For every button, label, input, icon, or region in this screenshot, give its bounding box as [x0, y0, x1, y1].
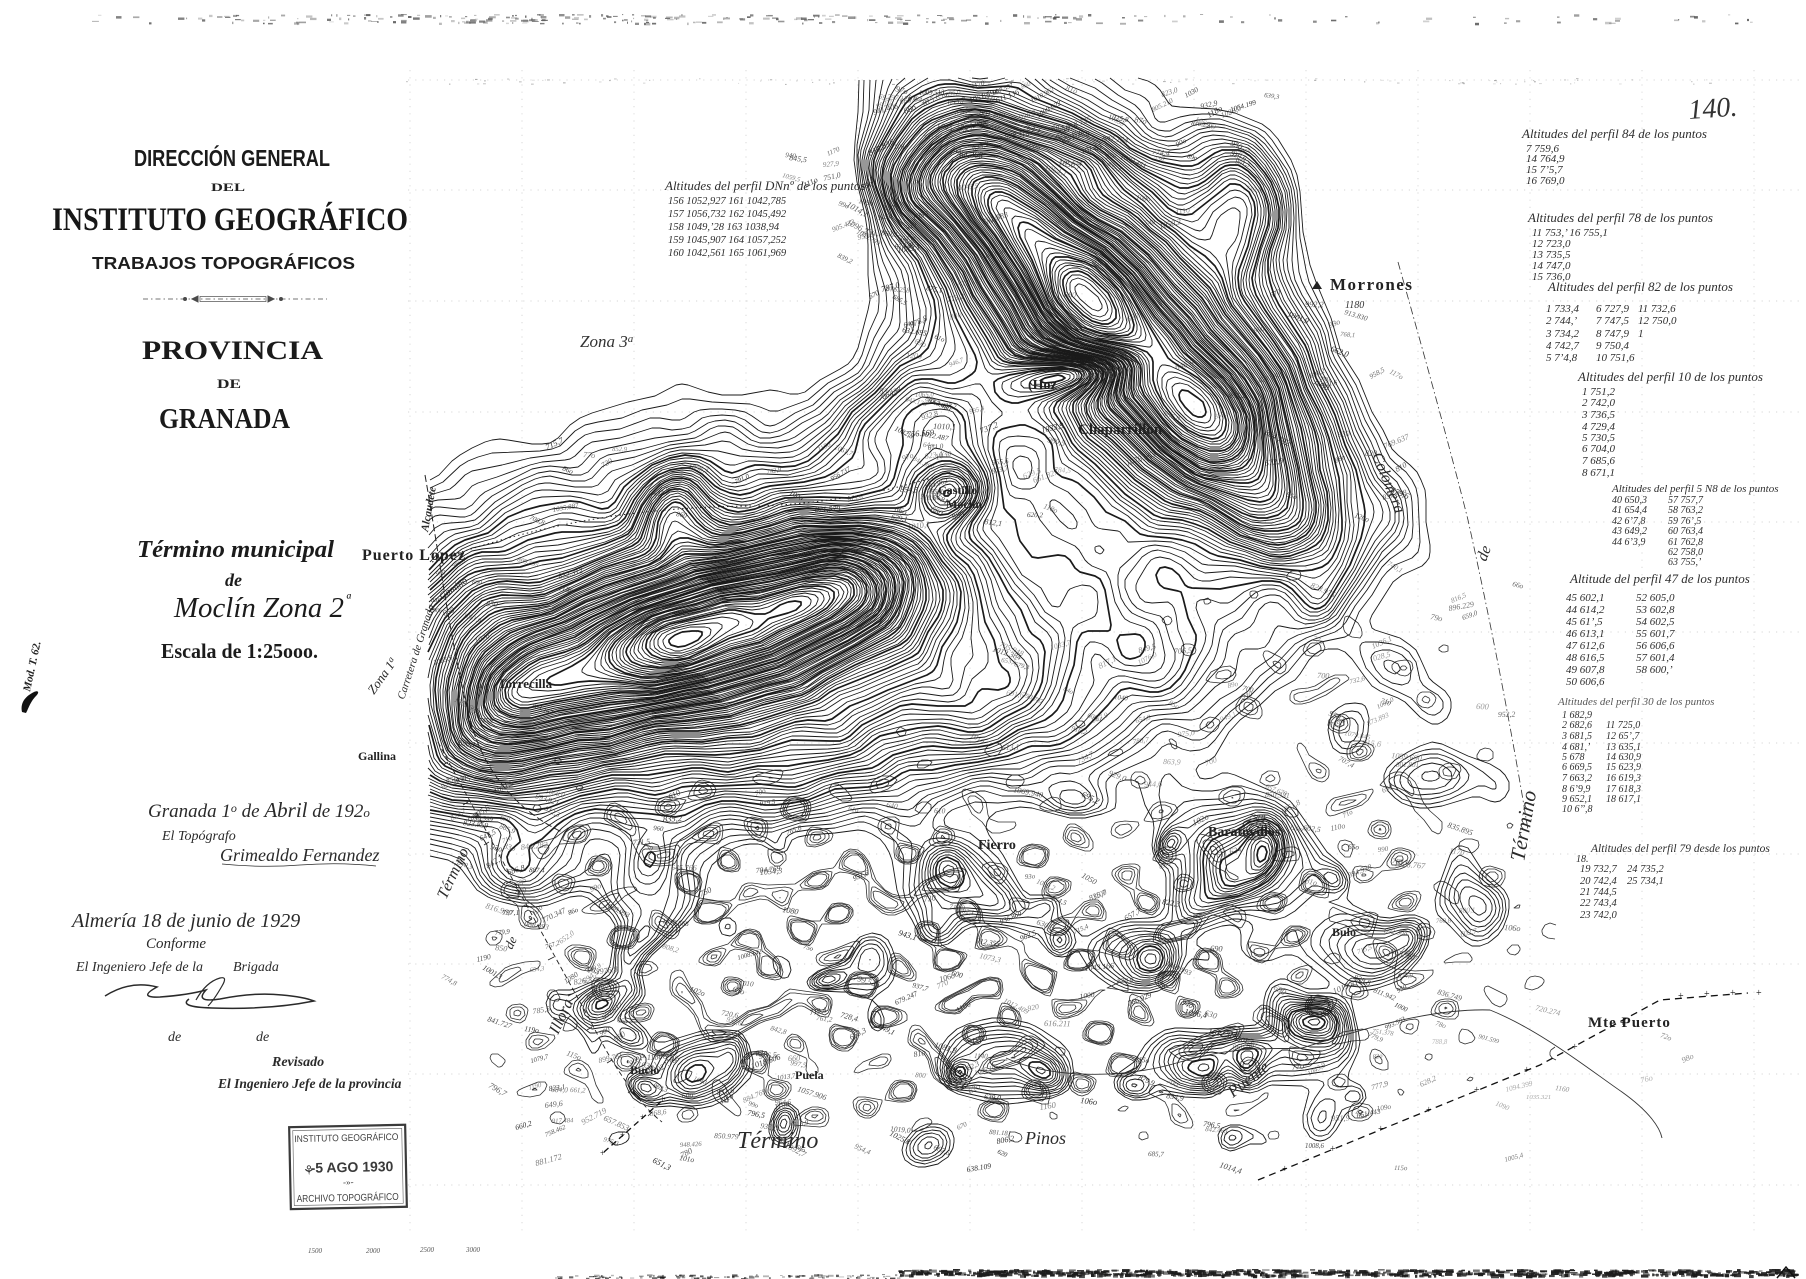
svg-text:835,2: 835,2	[663, 813, 683, 824]
svg-text:1010,1: 1010,1	[933, 422, 956, 431]
svg-text:944,6: 944,6	[1144, 779, 1163, 789]
svg-text:899.761: 899.761	[597, 1051, 623, 1065]
svg-text:821.579: 821.579	[815, 504, 841, 514]
svg-text:55 601,7: 55 601,7	[1636, 628, 1675, 640]
svg-text:610: 610	[934, 806, 946, 815]
svg-text:1050: 1050	[877, 212, 893, 222]
svg-text:1014,4: 1014,4	[1218, 1160, 1242, 1176]
svg-text:75o: 75o	[802, 943, 814, 953]
svg-text:876.258: 876.258	[886, 284, 911, 295]
svg-text:861,2: 861,2	[1228, 391, 1246, 400]
svg-text:850.979: 850.979	[714, 1131, 739, 1141]
svg-text:86o: 86o	[561, 464, 574, 476]
svg-text:845,5: 845,5	[789, 153, 808, 164]
svg-text:842.463: 842.463	[1205, 1126, 1229, 1135]
svg-text:15 623,9: 15 623,9	[1606, 762, 1641, 773]
svg-text:790.787: 790.787	[1021, 691, 1044, 706]
svg-text:620,2: 620,2	[1027, 511, 1044, 519]
svg-text:94o: 94o	[953, 147, 966, 157]
svg-text:1170: 1170	[826, 146, 841, 158]
svg-text:768,1: 768,1	[1340, 331, 1356, 339]
svg-text:649,6: 649,6	[544, 1099, 563, 1110]
svg-text:+: +	[1756, 988, 1762, 999]
svg-text:81o: 81o	[913, 1048, 926, 1059]
svg-text:21 744,5: 21 744,5	[1580, 887, 1617, 898]
svg-text:159 1045,907 164 1057,252: 159 1045,907 164 1057,252	[668, 235, 787, 246]
svg-text:1035.321: 1035.321	[1526, 1094, 1551, 1101]
svg-text:Torrecilla: Torrecilla	[498, 676, 553, 691]
svg-text:Castillo: Castillo	[938, 483, 977, 497]
svg-text:48 616,5: 48 616,5	[1566, 652, 1605, 664]
svg-text:81o: 81o	[1064, 83, 1078, 95]
svg-text:1023,9: 1023,9	[432, 653, 453, 666]
svg-text:657.853: 657.853	[602, 1114, 630, 1133]
svg-text:975,0: 975,0	[1177, 728, 1195, 739]
svg-text:Zona 3a: Zona 3a	[580, 332, 634, 351]
svg-text:2000: 2000	[366, 1247, 381, 1255]
svg-text:Escala de 1:25ooo.: Escala de 1:25ooo.	[161, 639, 318, 663]
svg-text:948.426: 948.426	[680, 1141, 703, 1149]
svg-text:824,9: 824,9	[1398, 972, 1414, 980]
svg-text:730: 730	[923, 893, 937, 904]
svg-text:ª: ª	[346, 592, 352, 609]
svg-text:730: 730	[1021, 340, 1033, 349]
svg-text:1079,7: 1079,7	[530, 1053, 550, 1065]
svg-text:715,5: 715,5	[1356, 944, 1373, 956]
svg-text:811.942: 811.942	[1372, 986, 1397, 1003]
svg-text:+: +	[1378, 1124, 1384, 1135]
svg-text:796,5: 796,5	[747, 1108, 766, 1120]
svg-text:DE: DE	[217, 376, 241, 391]
svg-text:602,7: 602,7	[1459, 926, 1478, 939]
svg-text:740,9: 740,9	[1245, 183, 1263, 195]
svg-text:+: +	[1474, 1085, 1480, 1096]
svg-text:927,9: 927,9	[822, 160, 839, 169]
svg-text:690: 690	[1210, 944, 1224, 954]
svg-text:Conforme: Conforme	[146, 936, 206, 952]
svg-text:842,8: 842,8	[769, 1023, 788, 1036]
svg-text:+: +	[1704, 989, 1710, 1000]
svg-text:93o: 93o	[1327, 317, 1341, 330]
svg-text:639,3: 639,3	[1264, 92, 1281, 101]
svg-text:661,2: 661,2	[570, 1087, 586, 1095]
svg-text:57 601,4: 57 601,4	[1636, 652, 1675, 664]
svg-text:10 6’’,8: 10 6’’,8	[1562, 804, 1593, 815]
svg-text:875,1: 875,1	[926, 284, 943, 295]
svg-text:49 607,8: 49 607,8	[1566, 664, 1605, 676]
svg-text:1170: 1170	[1449, 846, 1465, 857]
svg-text:774,8: 774,8	[440, 972, 459, 988]
svg-text:715,4: 715,4	[1073, 923, 1090, 936]
svg-text:887.754: 887.754	[1102, 134, 1129, 145]
svg-text:7 747,5: 7 747,5	[1596, 315, 1630, 327]
svg-text:⚘: ⚘	[303, 1163, 315, 1178]
svg-text:728,4: 728,4	[839, 1010, 859, 1023]
svg-text:616.211: 616.211	[1044, 1019, 1071, 1028]
svg-text:22 743,4: 22 743,4	[1580, 898, 1618, 909]
svg-text:Chaparrillon: Chaparrillon	[1078, 422, 1163, 438]
svg-text:620: 620	[996, 1148, 1009, 1159]
svg-text:785,5: 785,5	[532, 1004, 551, 1016]
svg-text:+: +	[1330, 1144, 1336, 1155]
svg-text:54 602,5: 54 602,5	[1636, 616, 1675, 628]
svg-text:990: 990	[1377, 845, 1389, 854]
svg-text:10 751,6: 10 751,6	[1596, 352, 1635, 364]
svg-text:613,1: 613,1	[1002, 742, 1020, 752]
svg-text:1190: 1190	[475, 952, 491, 964]
svg-text:765,6: 765,6	[785, 824, 803, 837]
svg-text:87o: 87o	[1134, 115, 1148, 126]
svg-text:706,5: 706,5	[1174, 646, 1193, 656]
svg-text:788,8: 788,8	[1432, 1039, 1448, 1046]
svg-text:106o: 106o	[938, 971, 956, 984]
svg-text:1005,4: 1005,4	[1503, 1151, 1524, 1164]
svg-text:707,4: 707,4	[1337, 754, 1356, 770]
svg-text:61o: 61o	[933, 333, 946, 344]
svg-text:700: 700	[1203, 755, 1218, 768]
svg-text:+: +	[1678, 991, 1684, 1002]
svg-text:-»-: -»-	[343, 1177, 354, 1187]
svg-text:828.975: 828.975	[1309, 581, 1336, 600]
svg-text:61o: 61o	[848, 805, 860, 814]
svg-text:DIRECCIÓN GENERAL: DIRECCIÓN GENERAL	[134, 144, 330, 171]
svg-text:3 681,5: 3 681,5	[1561, 731, 1592, 742]
svg-text:770.347: 770.347	[540, 905, 568, 924]
svg-text:900: 900	[1253, 324, 1266, 335]
svg-text:3 734,2: 3 734,2	[1545, 328, 1580, 340]
svg-text:11 725,0: 11 725,0	[1606, 720, 1640, 731]
svg-text:Brigada: Brigada	[233, 960, 279, 975]
svg-text:767,2: 767,2	[544, 939, 561, 950]
svg-text:1000: 1000	[1393, 1002, 1409, 1015]
svg-text:50 606,6: 50 606,6	[1566, 676, 1605, 688]
svg-text:Zona 1a: Zona 1a	[364, 654, 400, 697]
svg-text:760,8: 760,8	[1436, 917, 1452, 925]
svg-text:812,1: 812,1	[984, 517, 1003, 528]
svg-text:652,0: 652,0	[557, 928, 576, 945]
svg-text:993,4: 993,4	[1234, 147, 1251, 156]
svg-text:65o: 65o	[1348, 842, 1360, 852]
svg-text:110o: 110o	[1330, 821, 1347, 833]
svg-text:801.801: 801.801	[1396, 761, 1419, 769]
svg-text:660,2: 660,2	[514, 1119, 533, 1132]
svg-text:695,2: 695,2	[1080, 790, 1101, 806]
svg-text:955,6: 955,6	[991, 456, 1009, 467]
svg-text:854,5: 854,5	[900, 485, 918, 494]
svg-text:812,3: 812,3	[543, 805, 561, 820]
svg-text:Almería 18 de junio de 1929: Almería 18 de junio de 1929	[70, 910, 300, 932]
svg-text:88o: 88o	[1333, 453, 1346, 465]
svg-text:+: +	[1524, 1065, 1530, 1076]
svg-text:936.860: 936.860	[999, 909, 1024, 925]
svg-text:Bulo: Bulo	[1332, 925, 1356, 939]
svg-text:24 735,2: 24 735,2	[1627, 864, 1665, 875]
svg-text:de: de	[256, 1030, 269, 1045]
svg-text:3000: 3000	[465, 1246, 481, 1254]
svg-text:Bucio: Bucio	[630, 1063, 659, 1077]
svg-text:Granada 1o de Abril de 192o: Granada 1o de Abril de 192o	[148, 798, 370, 822]
svg-text:Moclín Zona 2: Moclín Zona 2	[173, 593, 344, 624]
svg-text:1054,3: 1054,3	[759, 866, 782, 877]
svg-text:1094.399: 1094.399	[1504, 1078, 1533, 1094]
svg-text:850: 850	[883, 203, 895, 212]
svg-text:720,6: 720,6	[721, 1008, 740, 1020]
svg-text:Carretera de Granada: Carretera de Granada	[395, 602, 437, 701]
svg-text:12 65’,7: 12 65’,7	[1606, 731, 1640, 742]
svg-text:Alcaudete: Alcaudete	[419, 486, 439, 534]
svg-text:5 7’4,8: 5 7’4,8	[1546, 352, 1578, 364]
svg-text:684,0: 684,0	[551, 1085, 568, 1094]
svg-text:860: 860	[676, 510, 688, 520]
svg-text:INSTITUTO GEOGRÁFICO: INSTITUTO GEOGRÁFICO	[52, 201, 408, 238]
svg-text:600: 600	[1476, 701, 1490, 711]
svg-text:El Topógrafo: El Topógrafo	[161, 829, 236, 844]
svg-text:157 1056,732 162 1045,492: 157 1056,732 162 1045,492	[668, 209, 787, 220]
svg-text:1050: 1050	[1080, 871, 1098, 887]
svg-text:18 617,1: 18 617,1	[1606, 794, 1641, 805]
svg-text:115o: 115o	[1394, 1165, 1408, 1172]
svg-text:de: de	[1474, 543, 1495, 563]
svg-text:1096,3: 1096,3	[688, 462, 710, 474]
svg-text:+: +	[1730, 988, 1736, 999]
svg-text:958,5: 958,5	[1368, 366, 1386, 381]
svg-text:1140: 1140	[974, 1052, 988, 1060]
svg-text:58 600,’: 58 600,’	[1636, 664, 1673, 676]
svg-text:2 682,6: 2 682,6	[1562, 720, 1592, 731]
svg-text:47 612,6: 47 612,6	[1566, 640, 1605, 652]
svg-text:1086.993: 1086.993	[603, 901, 631, 920]
svg-text:19 732,7: 19 732,7	[1580, 864, 1618, 875]
svg-text:8 747,9: 8 747,9	[1596, 328, 1630, 340]
svg-text:1: 1	[1638, 328, 1644, 340]
svg-text:660: 660	[788, 1054, 800, 1063]
svg-text:DEL: DEL	[211, 180, 245, 194]
svg-text:685,7: 685,7	[1148, 1150, 1165, 1159]
svg-text:TRABAJOS TOPOGRÁFICOS: TRABAJOS TOPOGRÁFICOS	[92, 252, 355, 273]
svg-text:-5 AGO 1930: -5 AGO 1930	[310, 1158, 393, 1176]
svg-text:1080: 1080	[782, 905, 799, 916]
svg-text:860,3: 860,3	[881, 229, 898, 239]
svg-text:919,5: 919,5	[759, 798, 776, 808]
svg-text:+: +	[1426, 1105, 1432, 1116]
svg-text:920: 920	[1027, 1002, 1040, 1013]
svg-text:740: 740	[1145, 219, 1156, 227]
svg-text:645.766: 645.766	[671, 863, 697, 872]
svg-text:66o: 66o	[1512, 579, 1525, 590]
svg-text:952,2: 952,2	[1498, 710, 1516, 719]
svg-text:118o: 118o	[558, 583, 575, 595]
svg-text:98o: 98o	[1680, 1052, 1695, 1065]
svg-text:651,3: 651,3	[651, 1155, 673, 1173]
svg-text:El Ingeniero Jefe de la: El Ingeniero Jefe de la	[75, 960, 203, 975]
svg-text:79o: 79o	[1430, 612, 1444, 623]
svg-text:816.907: 816.907	[484, 900, 514, 918]
svg-text:1030: 1030	[1183, 85, 1200, 100]
svg-text:1028,5: 1028,5	[1368, 650, 1391, 664]
svg-text:20 742,4: 20 742,4	[1580, 876, 1618, 887]
svg-text:3 736,5: 3 736,5	[1581, 409, 1616, 421]
svg-text:951,9: 951,9	[1331, 1114, 1351, 1123]
svg-text:839,2: 839,2	[836, 252, 854, 266]
svg-text:GRANADA: GRANADA	[159, 403, 290, 435]
svg-text:630,3: 630,3	[1035, 917, 1055, 932]
svg-text:901.599: 901.599	[1477, 1033, 1500, 1045]
svg-text:602,5: 602,5	[1303, 823, 1322, 834]
svg-text:118o: 118o	[1042, 501, 1059, 515]
svg-text:Morrones: Morrones	[1330, 275, 1413, 294]
svg-text:1180: 1180	[1345, 300, 1364, 311]
svg-text:1018.666: 1018.666	[662, 917, 690, 928]
svg-text:960: 960	[653, 825, 664, 833]
svg-text:11 732,6: 11 732,6	[1638, 303, 1676, 315]
svg-text:647,5: 647,5	[478, 827, 497, 843]
svg-text:101o: 101o	[679, 1153, 695, 1164]
svg-text:850.331: 850.331	[1265, 790, 1290, 800]
svg-text:115o: 115o	[1192, 912, 1206, 920]
svg-text:8 671,1: 8 671,1	[1582, 467, 1615, 479]
svg-text:962,5: 962,5	[1018, 928, 1037, 943]
svg-text:784,5: 784,5	[1054, 465, 1072, 475]
svg-text:77o: 77o	[583, 450, 596, 460]
svg-text:1082,8: 1082,8	[893, 424, 915, 441]
svg-text:887,4: 887,4	[529, 867, 545, 875]
svg-text:1057.906: 1057.906	[796, 1084, 827, 1102]
svg-text:870,9: 870,9	[1117, 976, 1134, 985]
svg-text:881.172: 881.172	[534, 1152, 563, 1168]
svg-text:1069.940: 1069.940	[1013, 785, 1044, 800]
svg-text:PROVINCIA: PROVINCIA	[142, 336, 323, 365]
svg-text:158 1049,’28 163 1038,94: 158 1049,’28 163 1038,94	[668, 222, 780, 233]
svg-text:Altitudes del perfil 5 N8 de l: Altitudes del perfil 5 N8 de los puntos	[1611, 483, 1779, 495]
svg-text:912.355: 912.355	[976, 936, 1001, 948]
svg-text:808,2: 808,2	[661, 941, 680, 955]
svg-text:873.893: 873.893	[1366, 711, 1391, 728]
svg-text:Gallina: Gallina	[358, 749, 396, 763]
svg-text:654,3: 654,3	[529, 965, 545, 974]
svg-text:80o: 80o	[948, 310, 962, 322]
svg-text:850: 850	[486, 599, 498, 609]
svg-text:Mte Puerto: Mte Puerto	[1588, 1015, 1671, 1031]
svg-text:106o: 106o	[1504, 923, 1521, 933]
svg-text:Altitudes del perfil 10 de los: Altitudes del perfil 10 de los puntos	[1577, 369, 1763, 384]
svg-text:45 602,1: 45 602,1	[1566, 592, 1605, 604]
svg-text:+: +	[600, 1148, 605, 1158]
svg-text:69o: 69o	[1259, 1004, 1270, 1012]
svg-text:920,2: 920,2	[1092, 258, 1110, 268]
svg-text:600: 600	[472, 579, 483, 587]
svg-text:Término municipal: Término municipal	[137, 537, 334, 563]
svg-text:Moclin: Moclin	[946, 497, 982, 511]
svg-text:43 649,2: 43 649,2	[1612, 526, 1647, 537]
svg-text:6 727,9: 6 727,9	[1596, 303, 1630, 315]
svg-text:Grimealdo Fernandez: Grimealdo Fernandez	[220, 845, 379, 865]
svg-text:INSTITUTO GEOGRÁFICO: INSTITUTO GEOGRÁFICO	[294, 1132, 398, 1145]
svg-text:58 763,2: 58 763,2	[1668, 505, 1703, 516]
svg-text:76o: 76o	[1639, 1073, 1653, 1085]
svg-text:849,1: 849,1	[877, 1022, 896, 1037]
svg-text:835.895: 835.895	[1446, 820, 1474, 837]
svg-text:916,2: 916,2	[1070, 724, 1088, 736]
svg-text:1010,1: 1010,1	[907, 520, 931, 532]
svg-text:156 1052,927 161 1042,785: 156 1052,927 161 1042,785	[668, 196, 786, 207]
svg-text:Altitudes del perfil 82 de los: Altitudes del perfil 82 de los puntos	[1547, 279, 1733, 294]
svg-text:700: 700	[1317, 671, 1330, 681]
svg-text:63 755,’: 63 755,’	[1668, 557, 1702, 568]
svg-text:Altitudes del perfil 30 de los: Altitudes del perfil 30 de los puntos	[1557, 696, 1714, 708]
svg-text:1033,7: 1033,7	[1049, 638, 1071, 652]
svg-text:106o: 106o	[1080, 1095, 1098, 1107]
svg-text:653,5: 653,5	[1001, 657, 1018, 666]
svg-text:140.: 140.	[1687, 92, 1738, 126]
svg-text:77o: 77o	[1291, 1061, 1305, 1072]
svg-text:72o: 72o	[1659, 1030, 1673, 1042]
svg-text:761,6: 761,6	[1052, 200, 1070, 211]
svg-text:1190: 1190	[528, 1082, 543, 1092]
svg-text:Término: Término	[434, 845, 472, 901]
svg-text:905.433: 905.433	[830, 217, 856, 234]
svg-text:2 742,0: 2 742,0	[1582, 397, 1616, 409]
svg-text:Revisado: Revisado	[271, 1055, 324, 1070]
svg-text:120o: 120o	[1289, 824, 1304, 834]
svg-text:734,7: 734,7	[1076, 749, 1097, 766]
svg-text:1081,0: 1081,0	[462, 612, 482, 624]
svg-text:Altitudes del perfil 78 de los: Altitudes del perfil 78 de los puntos	[1527, 210, 1713, 225]
svg-text:917.484: 917.484	[552, 1117, 574, 1125]
svg-text:117o: 117o	[1388, 367, 1405, 382]
svg-text:4 742,7: 4 742,7	[1546, 340, 1580, 352]
svg-text:6 704,0: 6 704,0	[1582, 443, 1616, 455]
svg-text:863,9: 863,9	[1163, 757, 1181, 767]
svg-text:880,1: 880,1	[1459, 905, 1476, 915]
svg-text:45 61’,5: 45 61’,5	[1566, 616, 1603, 628]
svg-text:881.181: 881.181	[989, 1129, 1012, 1138]
svg-text:41 654,4: 41 654,4	[1612, 505, 1647, 516]
svg-text:841.282: 841.282	[520, 840, 548, 852]
svg-text:774,4: 774,4	[1152, 147, 1170, 158]
svg-text:720.274: 720.274	[1535, 1003, 1562, 1017]
svg-text:1036,1: 1036,1	[1370, 634, 1393, 651]
svg-text:930: 930	[1337, 429, 1350, 439]
svg-text:Término: Término	[1505, 789, 1541, 863]
svg-text:2 744,’: 2 744,’	[1546, 315, 1578, 327]
svg-text:60o: 60o	[682, 1091, 694, 1100]
svg-text:53 602,8: 53 602,8	[1636, 604, 1675, 616]
svg-text:Baratovillos: Baratovillos	[1208, 825, 1281, 840]
svg-text:46 613,1: 46 613,1	[1566, 628, 1605, 640]
svg-text:866,8: 866,8	[1162, 408, 1181, 423]
svg-text:680: 680	[929, 505, 945, 519]
svg-text:+: +	[620, 1130, 625, 1140]
svg-text:1008,6: 1008,6	[1305, 1143, 1325, 1150]
svg-text:78o: 78o	[1434, 1019, 1447, 1030]
svg-text:610: 610	[667, 788, 683, 802]
svg-text:Altitudes del perfil 84 de los: Altitudes del perfil 84 de los puntos	[1521, 126, 1707, 141]
svg-text:976,8: 976,8	[599, 965, 618, 976]
svg-text:659,0: 659,0	[1461, 609, 1479, 622]
svg-text:7 663,2: 7 663,2	[1562, 773, 1592, 784]
svg-text:16 769,0: 16 769,0	[1526, 175, 1565, 187]
svg-text:710,8: 710,8	[920, 492, 937, 502]
svg-text:Altitudes del perfil DNnº de l: Altitudes del perfil DNnº de los puntos	[664, 178, 865, 193]
svg-text:Término: Término	[737, 1128, 818, 1154]
svg-text:1160: 1160	[1555, 1083, 1571, 1094]
svg-text:906,5: 906,5	[758, 1050, 777, 1061]
svg-text:+: +	[660, 1094, 665, 1104]
svg-text:77o: 77o	[1311, 634, 1325, 647]
svg-text:106o: 106o	[894, 143, 909, 151]
svg-text:980,5: 980,5	[1047, 435, 1067, 448]
svg-text:(Hoz: (Hoz	[1028, 378, 1057, 393]
